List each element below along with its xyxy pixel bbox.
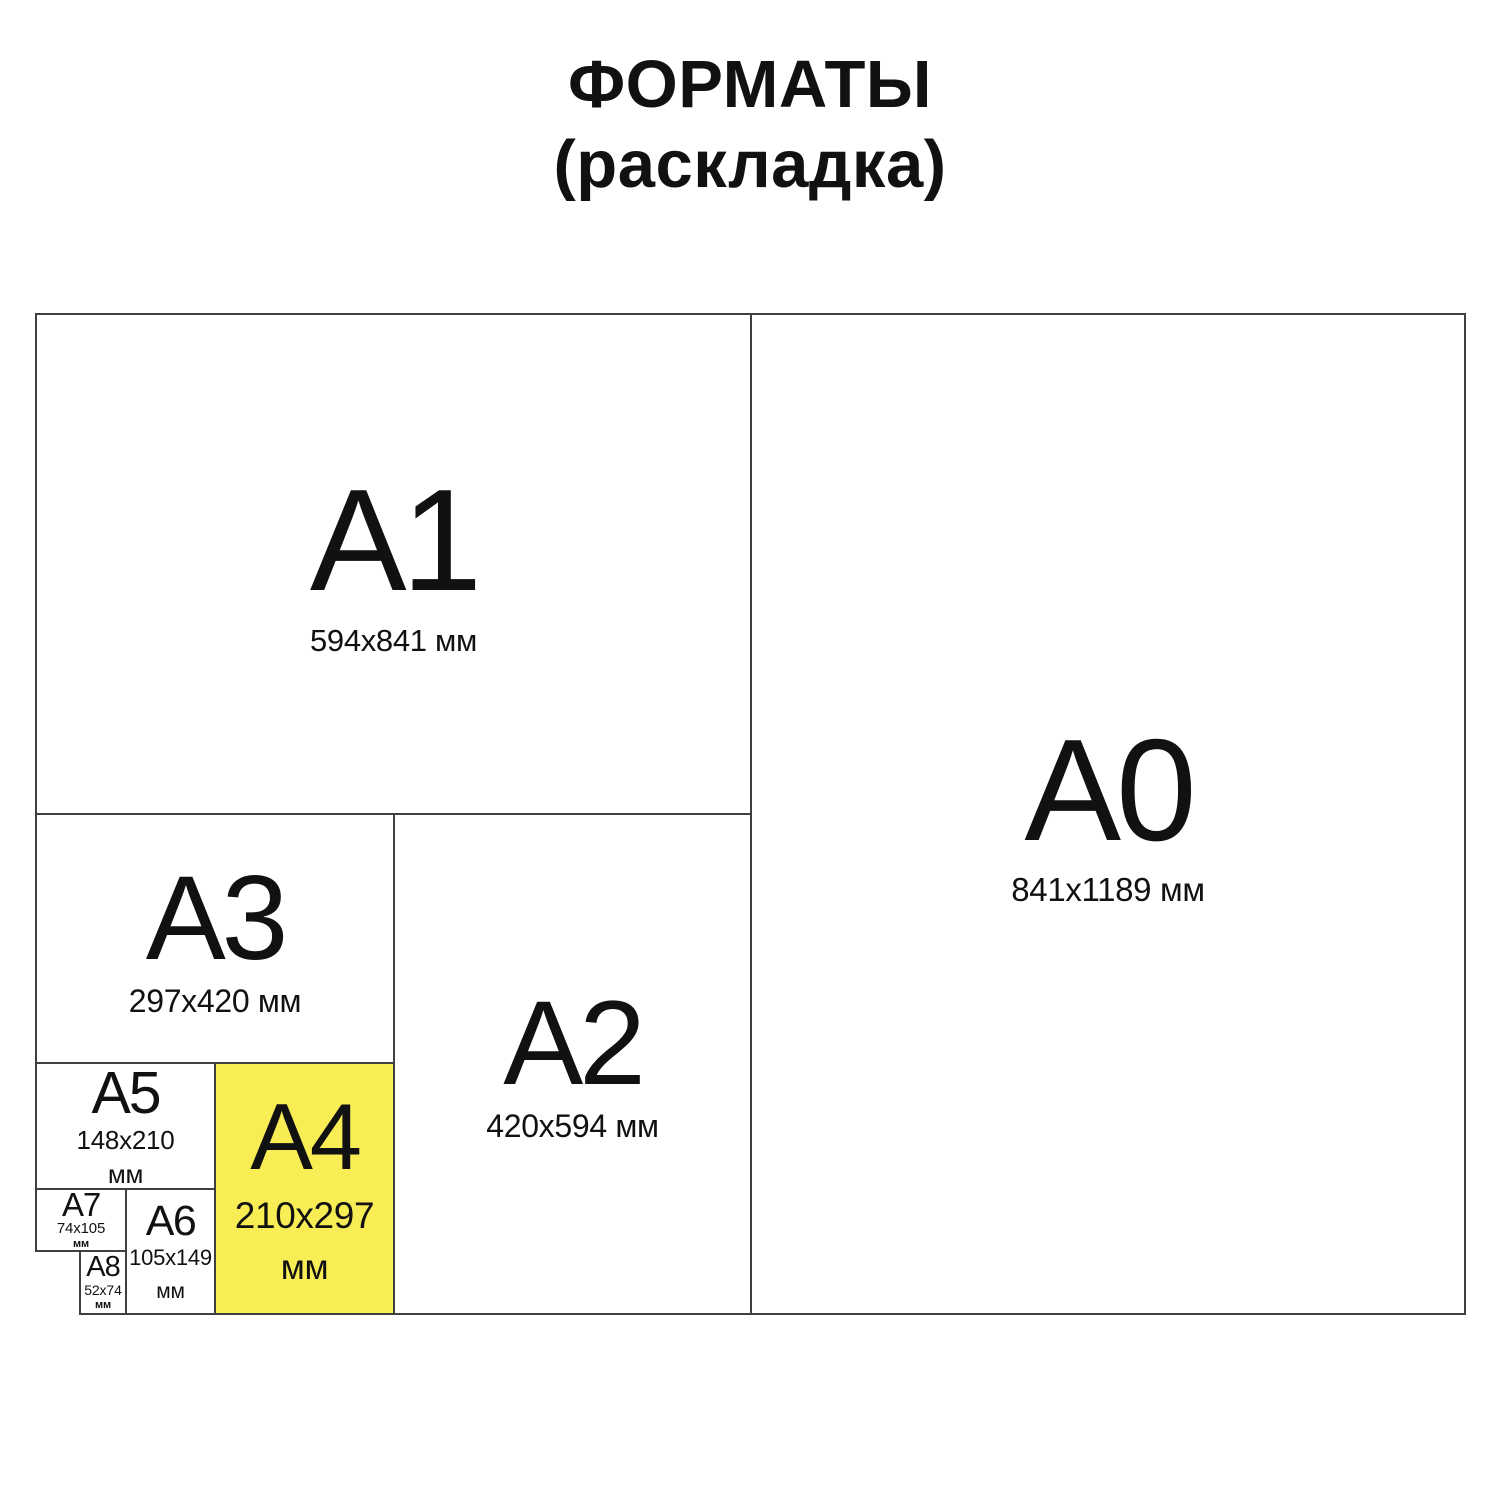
format-a4-size: 210x297 (235, 1197, 374, 1234)
title-line1: ФОРМАТЫ (0, 45, 1500, 125)
sheet-a8: A8 52x74 мм (79, 1250, 127, 1315)
page-title: ФОРМАТЫ (раскладка) (0, 45, 1500, 206)
sheet-a2: A2 420x594 мм (393, 813, 752, 1315)
format-a8-size: 52x74 (84, 1283, 121, 1297)
sheet-a0: A0 841x1189 мм (750, 313, 1466, 1315)
format-a1-label: A1 (310, 472, 477, 610)
formats-diagram: ФОРМАТЫ (раскладка) A1 594x841 мм A0 841… (0, 0, 1500, 1500)
sheet-a5: A5 148x210 мм (35, 1062, 216, 1190)
format-a6-label: A6 (146, 1201, 196, 1242)
sheet-a4-highlighted: A4 210x297 мм (214, 1062, 395, 1315)
format-a5-size: 148x210 (77, 1127, 175, 1153)
format-a3-size: 297x420 мм (129, 985, 301, 1017)
sheet-a7: A7 74x105 мм (35, 1188, 127, 1252)
format-a8-unit: мм (95, 1300, 111, 1311)
format-a7-unit: мм (73, 1239, 89, 1250)
format-a4-unit: мм (281, 1250, 328, 1285)
format-a3-label: A3 (146, 861, 284, 975)
format-a0-label: A0 (1024, 722, 1191, 860)
format-a7-size: 74x105 (57, 1221, 105, 1236)
sheet-a6: A6 105x149 мм (125, 1188, 216, 1315)
sheet-a1: A1 594x841 мм (35, 313, 752, 815)
format-a6-unit: мм (156, 1281, 184, 1302)
format-a0-size: 841x1189 мм (1011, 873, 1204, 906)
format-a7-label: A7 (62, 1190, 100, 1220)
format-a1-size: 594x841 мм (310, 625, 477, 656)
format-a5-unit: мм (108, 1161, 143, 1187)
sheet-a3: A3 297x420 мм (35, 813, 395, 1064)
format-a8-label: A8 (86, 1254, 119, 1280)
format-a5-label: A5 (91, 1065, 159, 1121)
format-a6-size: 105x149 (129, 1247, 212, 1269)
format-a4-label: A4 (250, 1092, 358, 1181)
title-line2: (раскладка) (0, 125, 1500, 205)
format-a2-size: 420x594 мм (486, 1110, 658, 1142)
format-a2-label: A2 (503, 986, 641, 1100)
